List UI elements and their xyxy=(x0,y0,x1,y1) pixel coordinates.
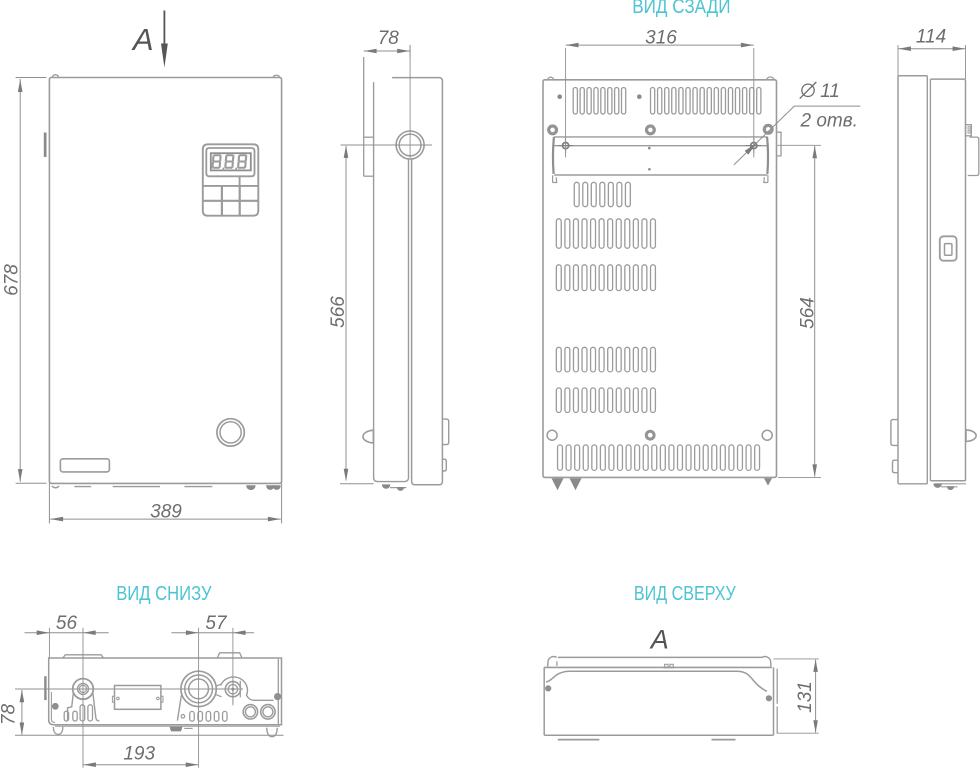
svg-text:56: 56 xyxy=(56,613,78,634)
svg-text:78: 78 xyxy=(378,28,400,49)
svg-text:564: 564 xyxy=(798,297,819,329)
svg-text:566: 566 xyxy=(328,296,349,328)
svg-text:57: 57 xyxy=(205,613,228,634)
svg-text:ВИД СНИЗУ: ВИД СНИЗУ xyxy=(116,583,212,605)
svg-text:78: 78 xyxy=(0,704,20,726)
svg-text:389: 389 xyxy=(150,502,182,523)
svg-text:A: A xyxy=(131,22,154,57)
svg-text:2 отв.: 2 отв. xyxy=(799,111,857,132)
svg-text:193: 193 xyxy=(123,744,155,765)
svg-text:A: A xyxy=(649,625,669,655)
svg-text:114: 114 xyxy=(916,27,946,48)
svg-text:316: 316 xyxy=(645,28,677,49)
svg-text:678: 678 xyxy=(2,264,23,296)
svg-text:ВИД СЗАДИ: ВИД СЗАДИ xyxy=(632,0,730,18)
svg-text:11: 11 xyxy=(820,81,840,102)
svg-text:131: 131 xyxy=(795,681,816,713)
svg-text:ВИД СВЕРХУ: ВИД СВЕРХУ xyxy=(634,583,736,605)
